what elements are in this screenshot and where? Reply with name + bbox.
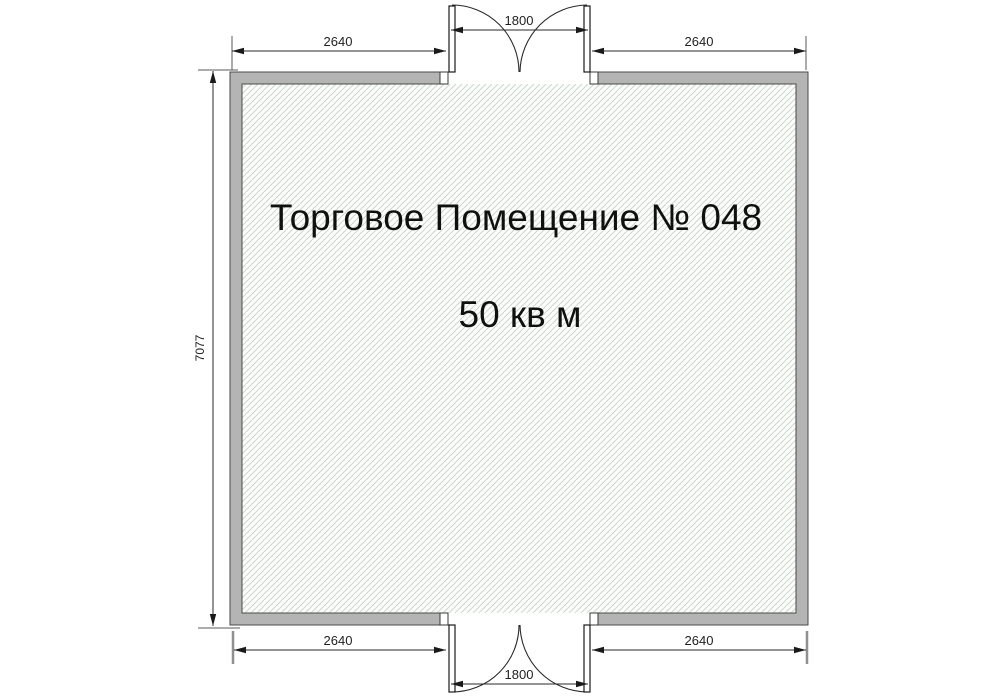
dim-label-top-door: 1800	[505, 13, 534, 28]
dim-left-side: 7077	[193, 71, 213, 626]
door-leaf-bottom-right	[584, 625, 590, 692]
dim-top-door: 1800	[451, 13, 588, 30]
dim-label-left-side: 7077	[193, 334, 207, 361]
door-leaf-top-left	[449, 6, 455, 72]
dim-label-top-left: 2640	[324, 34, 353, 49]
dim-bottom-door: 1800	[451, 667, 588, 684]
door-leaf-top-right	[584, 6, 590, 72]
dim-bottom-right: 2640	[592, 633, 806, 650]
door-jamb-bottom-right	[590, 613, 598, 625]
room-floor-hatch	[242, 84, 796, 613]
door-leaf-bottom-left	[449, 625, 455, 692]
door-jamb-top-left	[440, 72, 448, 84]
door-jamb-bottom-left	[440, 613, 448, 625]
dim-label-top-right: 2640	[685, 34, 714, 49]
dim-bottom-left: 2640	[234, 633, 446, 650]
room-area-label: 50 кв м	[459, 294, 582, 335]
floor-plan-canvas: 2640 1800 2640 7077 2640 1800	[0, 0, 1000, 700]
room-title: Торговое Помещение № 048	[270, 197, 762, 238]
dim-label-bottom-left: 2640	[324, 633, 353, 648]
dim-label-bottom-door: 1800	[505, 667, 534, 682]
dim-top-left: 2640	[232, 34, 446, 51]
dim-top-right: 2640	[592, 34, 806, 51]
floor-plan: 2640 1800 2640 7077 2640 1800	[0, 0, 1000, 700]
door-jamb-top-right	[590, 72, 598, 84]
dim-label-bottom-right: 2640	[685, 633, 714, 648]
